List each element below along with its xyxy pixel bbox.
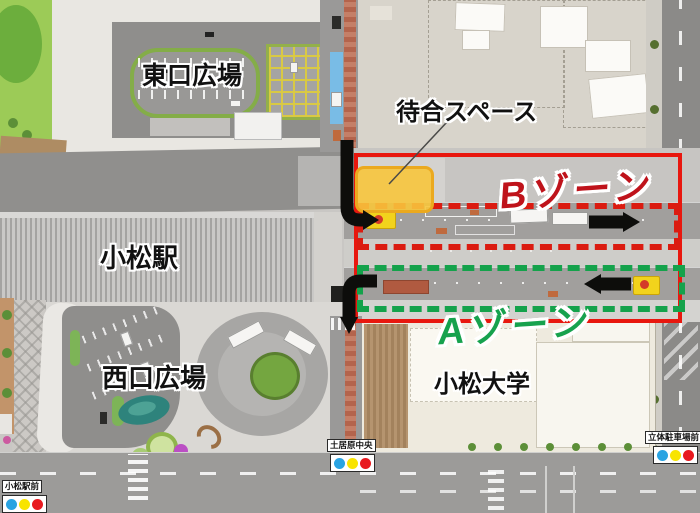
car-icon — [332, 16, 341, 29]
bus-stop-name: 土居原中央 — [327, 439, 376, 452]
road-edge-line — [573, 466, 575, 513]
yellow-parking-grid — [266, 44, 324, 120]
lane-dashes — [360, 490, 700, 493]
route-dot-red-icon — [683, 450, 694, 461]
car-icon — [205, 32, 214, 37]
university-roof-strip — [364, 324, 408, 448]
brick-sidewalk — [344, 0, 356, 152]
tree-icon — [650, 40, 659, 49]
bike-lane — [330, 52, 343, 124]
university-label: 小松大学 — [434, 364, 530, 399]
bus-route-dots — [653, 446, 698, 464]
road-edge-line — [545, 466, 547, 513]
bus-stop-name: 小松駅前 — [2, 480, 42, 493]
rail-platform-roof — [298, 156, 342, 206]
station-label: 小松駅 — [100, 238, 178, 275]
tree-icon — [8, 118, 18, 128]
crosswalk — [128, 454, 148, 500]
tree-icon — [572, 443, 580, 451]
tree-icon — [2, 310, 12, 320]
waiting-space-label: 待合スペース — [396, 92, 537, 127]
bus-route-dots — [330, 454, 375, 472]
building — [370, 6, 392, 20]
tree-icon — [650, 105, 659, 114]
route-dot-red-icon — [360, 458, 371, 469]
tree-icon — [624, 443, 632, 451]
route-dot-yellow-icon — [19, 499, 30, 510]
west-plaza-label: 西口広場 — [102, 358, 206, 395]
crosswalk — [488, 466, 504, 510]
tree-icon — [494, 443, 502, 451]
tree-icon — [520, 443, 528, 451]
route-dot-yellow-icon — [347, 458, 358, 469]
bus-stop-sign-rittai-chushajo-mae: 立体駐車場前 — [645, 427, 700, 464]
car-icon — [290, 62, 298, 73]
tree-icon — [2, 388, 12, 398]
route-dot-yellow-icon — [670, 450, 681, 461]
bus-stop-sign-doihara-chuo: 土居原中央 — [327, 435, 376, 472]
building — [455, 2, 506, 32]
bus-stop-name: 立体駐車場前 — [645, 431, 700, 444]
tree-icon — [546, 443, 554, 451]
car-icon — [333, 130, 341, 141]
building — [588, 73, 650, 119]
tree-icon — [2, 348, 12, 358]
building — [234, 112, 282, 140]
station-area-map: 東口広場 小松駅 西口広場 小松大学 待合スペース Bゾーン Aゾーン 小松駅前… — [0, 0, 700, 513]
route-dot-blue-icon — [334, 458, 345, 469]
route-dot-blue-icon — [6, 499, 17, 510]
car-icon — [100, 412, 107, 424]
waiting-space-area — [355, 166, 434, 213]
green-island — [70, 330, 80, 366]
car-icon — [230, 100, 241, 107]
building — [585, 40, 631, 72]
tree-icon — [468, 443, 476, 451]
route-dot-blue-icon — [657, 450, 668, 461]
building — [0, 414, 12, 434]
lane-dashes — [0, 472, 700, 475]
tree-icon — [598, 443, 606, 451]
roundabout-green-center — [250, 352, 300, 400]
play-feature — [3, 436, 11, 444]
route-dot-red-icon — [32, 499, 43, 510]
bus-stop-sign-komatsu-ekimae: 小松駅前 — [2, 476, 47, 513]
building — [536, 342, 650, 448]
building — [462, 30, 490, 50]
building — [540, 6, 588, 48]
car-icon — [331, 92, 342, 107]
east-plaza-label: 東口広場 — [142, 56, 242, 92]
bus-route-dots — [2, 495, 47, 513]
building — [150, 118, 230, 136]
zone-b-label: Bゾーン — [498, 154, 657, 219]
zone-a-label: Aゾーン — [436, 290, 595, 355]
